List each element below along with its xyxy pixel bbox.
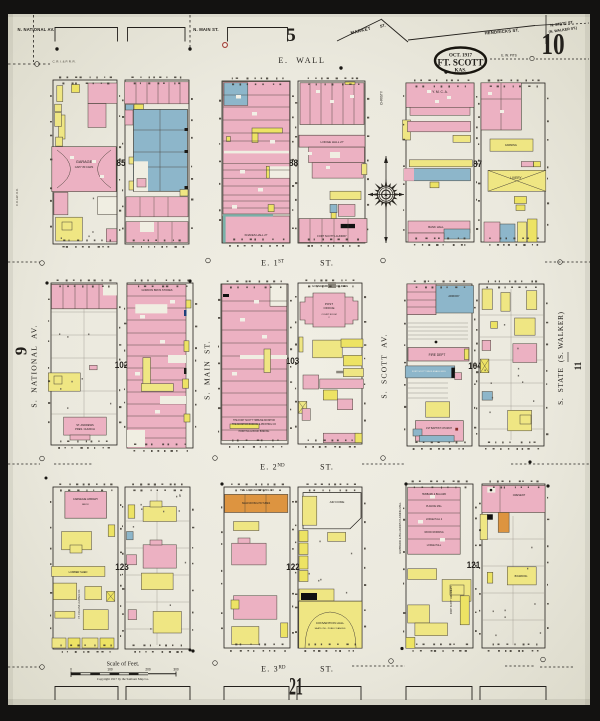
svg-text:GORDON BROS STORES: GORDON BROS STORES <box>141 288 172 292</box>
svg-text:THE MONITOR BINDING & PRINTING: THE MONITOR BINDING & PRINTING CO <box>232 424 276 426</box>
svg-text:COURT ROOM: COURT ROOM <box>321 314 336 316</box>
svg-text:THE LAKIN-McKEY MFG CO: THE LAKIN-McKEY MFG CO <box>240 488 274 492</box>
svg-text:★: ★ <box>383 192 388 199</box>
svg-text:SEATS 700 - PUBLIC DANCES: SEATS 700 - PUBLIC DANCES <box>315 627 346 630</box>
svg-text:LIVERY: LIVERY <box>510 176 522 180</box>
svg-text:CAPY 80 CARS: CAPY 80 CARS <box>75 165 94 169</box>
svg-text:FORT SCOTT LAUNDRY: FORT SCOTT LAUNDRY <box>317 234 347 238</box>
svg-text:100: 100 <box>107 668 113 672</box>
svg-text:ST.: ST. <box>320 463 334 472</box>
svg-text:PRES. CHURCH: PRES. CHURCH <box>75 427 95 431</box>
svg-text:SILVA MOVING PICTURES: SILVA MOVING PICTURES <box>242 502 271 505</box>
svg-text:5: 5 <box>286 25 296 46</box>
svg-text:CHRISTY: CHRISTY <box>380 90 384 105</box>
svg-text:S. NATIONAL AV.: S. NATIONAL AV. <box>30 324 39 407</box>
svg-text:N. MAIN ST.: N. MAIN ST. <box>193 27 218 32</box>
svg-text:WOOD WORKING: WOOD WORKING <box>424 532 443 534</box>
svg-text:KAS.: KAS. <box>455 68 468 74</box>
svg-text:KNAVES HALL 2?: KNAVES HALL 2? <box>245 233 268 237</box>
svg-text:AIR DOME: AIR DOME <box>330 500 345 504</box>
svg-text:C.R.I.&P. R.R.: C.R.I.&P. R.R. <box>15 188 19 206</box>
svg-text:E. WALL: E. WALL <box>278 56 325 65</box>
svg-text:S. STATE (S. WALKER): S. STATE (S. WALKER) <box>557 311 565 405</box>
svg-text:Y. M. C. A.: Y. M. C. A. <box>432 90 448 94</box>
svg-text:GARAGE: GARAGE <box>76 160 93 164</box>
svg-text:FT. COLLINS LUMBER CO.: FT. COLLINS LUMBER CO. <box>78 589 81 619</box>
svg-text:N. NATIONAL AV.: N. NATIONAL AV. <box>18 27 55 32</box>
svg-text:CRESENT: CRESENT <box>513 493 526 497</box>
svg-text:E. 3: E. 3 <box>261 665 279 674</box>
svg-text:BANK HALL: BANK HALL <box>428 225 444 229</box>
svg-text:E. 1: E. 1 <box>261 259 279 268</box>
svg-text:0: 0 <box>70 668 72 672</box>
svg-text:FIRE DEPT: FIRE DEPT <box>429 353 446 357</box>
svg-text:LUMBER SHED: LUMBER SHED <box>69 570 88 574</box>
svg-text:ARMORY: ARMORY <box>448 294 460 298</box>
svg-text:BOARDING: BOARDING <box>515 575 528 578</box>
svg-text:1ST BAPTIST CHURCH: 1ST BAPTIST CHURCH <box>426 427 452 430</box>
svg-text:ST.: ST. <box>320 665 334 674</box>
svg-text:CARNEGIE LIBRARY: CARNEGIE LIBRARY <box>73 497 99 501</box>
svg-text:S. MAIN ST.: S. MAIN ST. <box>203 340 212 400</box>
svg-text:10: 10 <box>541 27 564 61</box>
svg-text:E. W. PITS: E. W. PITS <box>501 54 517 58</box>
svg-text:ST: ST <box>278 260 284 265</box>
svg-text:121: 121 <box>467 560 481 571</box>
svg-text:PLANING MILL: PLANING MILL <box>426 505 443 508</box>
svg-text:21: 21 <box>289 673 303 700</box>
svg-text:FORT SCOTT CREAMERY: FORT SCOTT CREAMERY <box>450 585 453 614</box>
svg-text:LODGE HALL: LODGE HALL <box>427 544 442 547</box>
svg-text:300: 300 <box>173 668 179 672</box>
svg-text:HUBBARD & BILLIARDS PLANING MI: HUBBARD & BILLIARDS PLANING MILL <box>398 502 402 554</box>
svg-text:ST.: ST. <box>320 259 334 268</box>
svg-text:ST. ANDREWS: ST. ANDREWS <box>76 423 94 427</box>
svg-text:THE FORT SCOTT TRIBUNE MONITOR: THE FORT SCOTT TRIBUNE MONITOR <box>233 420 275 422</box>
svg-text:LODGE HALL 2?: LODGE HALL 2? <box>321 140 344 144</box>
svg-text:200: 200 <box>145 668 151 672</box>
svg-text:RD: RD <box>279 666 286 671</box>
svg-text:11: 11 <box>573 361 583 370</box>
svg-text:PRINTING & BOOK BINDING: PRINTING & BOOK BINDING <box>239 431 270 433</box>
svg-text:Copyright 1917 by the Sanborn: Copyright 1917 by the Sanborn Map Co. <box>97 677 149 681</box>
svg-text:OFFICE: OFFICE <box>324 306 335 310</box>
svg-text:FORT SCOTT WHOLESALE GRO.: FORT SCOTT WHOLESALE GRO. <box>412 370 447 373</box>
svg-text:Scale of Feet.: Scale of Feet. <box>107 661 140 668</box>
svg-text:FARMING: FARMING <box>505 143 517 147</box>
svg-text:E. 2: E. 2 <box>260 463 278 472</box>
svg-text:LODGE HALL 2: LODGE HALL 2 <box>426 518 443 521</box>
svg-text:85: 85 <box>116 158 125 169</box>
svg-text:CONVENTION HALL: CONVENTION HALL <box>316 621 345 625</box>
svg-text:C. R. I. & P. R. R.: C. R. I. & P. R. R. <box>52 60 75 64</box>
svg-text:S. SCOTT AV.: S. SCOTT AV. <box>380 333 389 398</box>
svg-text:9: 9 <box>12 347 31 356</box>
svg-text:6: 6 <box>179 493 181 498</box>
svg-text:ND: ND <box>277 464 285 469</box>
svg-text:BRICK: BRICK <box>82 504 89 506</box>
